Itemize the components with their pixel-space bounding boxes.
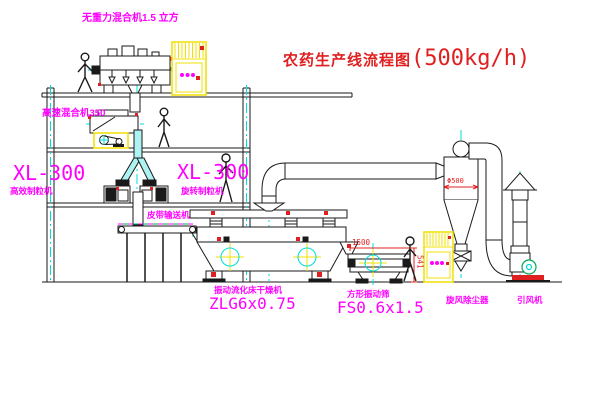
- exhaust-stack: [503, 173, 537, 272]
- control-cabinet-ground: [424, 232, 453, 282]
- control-cabinet-top: [172, 42, 206, 95]
- dim-cyclone-diameter: Φ500: [447, 178, 464, 185]
- label-granulator-mid-model: XL-300: [177, 162, 249, 182]
- label-fan: 引风机: [517, 296, 543, 305]
- label-dryer-model: ZLG6x0.75: [209, 296, 296, 312]
- exhaust-pipe: [254, 163, 449, 211]
- granulator-discharge-duct: [133, 192, 143, 225]
- title-capacity: (500kg/h): [411, 46, 530, 71]
- label-granulator-left-model: XL-300: [13, 163, 85, 183]
- label-granulator-left-name: 高效制粒机: [10, 187, 53, 196]
- worker-roof: [78, 53, 92, 92]
- label-gravity-mixer: 无重力混合机1.5 立方: [82, 14, 179, 24]
- belt-conveyor: [118, 224, 207, 282]
- flow-diagram-canvas: 农药生产线流程图(500kg/h) 无重力混合机1.5 立方 高速混合机350 …: [0, 0, 600, 403]
- granulator-left: [104, 186, 130, 203]
- fluid-bed-dryer: [190, 210, 358, 282]
- granulator-right: [140, 186, 168, 203]
- label-granulator-mid-name: 旋转制粒机: [181, 187, 224, 196]
- roof-mixer-discharge-duct: [130, 93, 140, 112]
- label-screen-model: FS0.6x1.5: [337, 300, 424, 316]
- dim-screen-height: 541: [416, 255, 424, 269]
- dim-screen-length: 1500: [352, 239, 370, 247]
- worker-floor2: [158, 108, 170, 147]
- drawing-title: 农药生产线流程图(500kg/h): [283, 48, 530, 70]
- title-text: 农药生产线流程图: [283, 52, 411, 69]
- label-belt-conveyor: 皮带输送机: [147, 211, 190, 220]
- label-high-speed-mixer: 高速混合机350: [42, 109, 105, 119]
- label-cyclone: 旋风除尘器: [446, 296, 489, 305]
- vibrating-screen: [348, 245, 417, 283]
